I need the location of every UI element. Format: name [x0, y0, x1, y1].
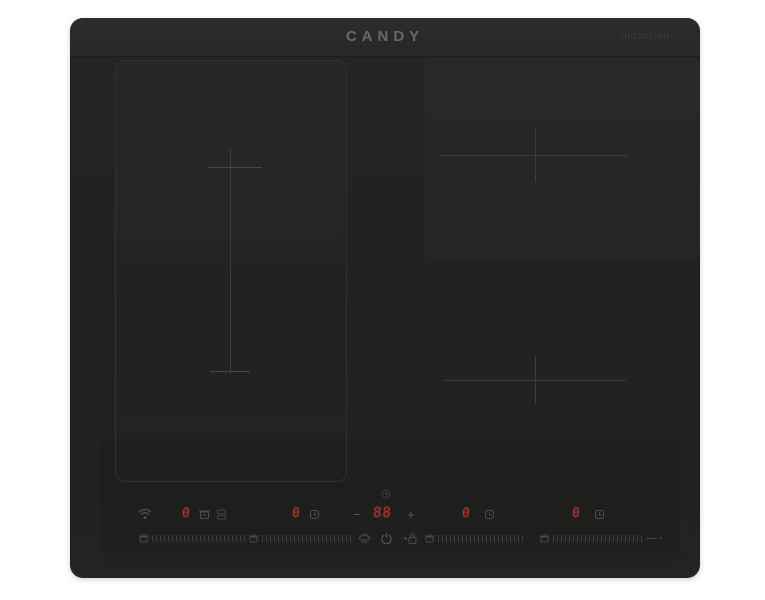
pan-icon [248, 533, 260, 544]
power-slider-left-rear[interactable] [262, 535, 352, 542]
clock-icon [594, 509, 605, 520]
lock-icon[interactable] [403, 532, 417, 545]
brand-logo: CANDY [70, 28, 700, 45]
page-background: CANDY induction 0 [0, 0, 765, 600]
timer-display[interactable]: 88 [372, 506, 392, 521]
control-panel-slider-row [70, 532, 700, 546]
control-panel-display-row: 0 0 − 8 [70, 504, 700, 526]
chef-hat-icon[interactable] [358, 532, 371, 545]
wifi-icon[interactable] [138, 508, 152, 520]
timer-indicator-clock-icon [381, 489, 391, 499]
flex-zone-top-cross [207, 167, 262, 168]
flex-zone-center-line [230, 148, 231, 374]
pan-icon [138, 533, 150, 544]
glass-reflection [425, 58, 700, 258]
power-slider-right-rear[interactable] [438, 535, 526, 542]
burner-cross-right-rear-horizontal [440, 155, 628, 156]
flex-zone-outline [115, 60, 347, 482]
burner-cross-right-front-vertical [535, 356, 536, 404]
induction-label: induction [621, 31, 670, 42]
zone-display-right-front[interactable]: 0 [572, 507, 581, 521]
zone-display-right-rear[interactable]: 0 [462, 507, 471, 521]
clock-icon [484, 509, 495, 520]
zone-display-left-rear[interactable]: 0 [292, 507, 301, 521]
slider-end-dot [660, 537, 662, 539]
clock-icon [309, 509, 320, 520]
burner-cross-right-rear-vertical [535, 128, 536, 182]
power-slider-left-front[interactable] [152, 535, 246, 542]
power-icon[interactable] [380, 532, 393, 545]
timer-minus-button[interactable]: − [353, 508, 361, 521]
power-slider-right-front[interactable] [553, 535, 643, 542]
pot-icon [199, 509, 210, 520]
timer-plus-button[interactable]: + [407, 508, 415, 521]
zone-display-left-front[interactable]: 0 [182, 507, 191, 521]
flex-zone-bottom-cross [210, 371, 250, 372]
top-bezel: CANDY induction [70, 18, 700, 57]
bridge-zone-icon [216, 509, 227, 520]
cooktop-body: CANDY induction 0 [70, 18, 700, 578]
slider-end-mark [647, 538, 656, 539]
pan-icon [424, 533, 436, 544]
pan-icon [539, 533, 551, 544]
